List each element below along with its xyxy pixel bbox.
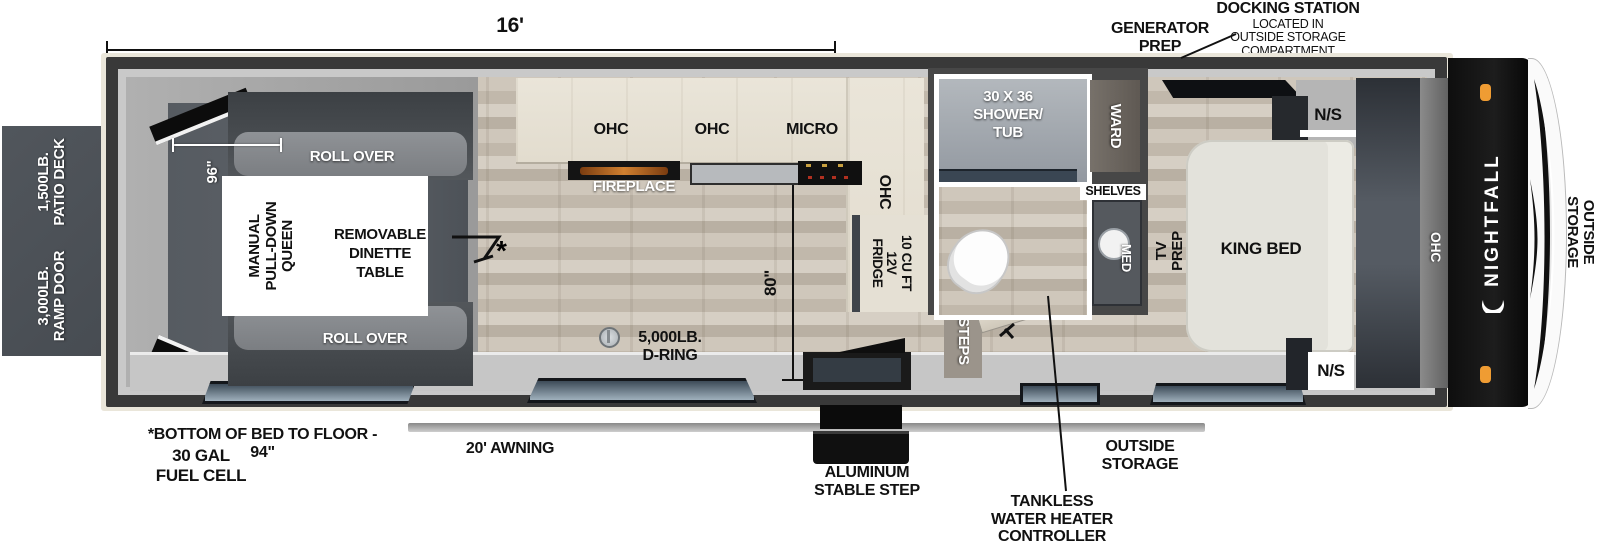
marker-light-bottom [1480,366,1491,383]
ns-top-label: N/S [1302,106,1354,125]
ohc-right-label: OHC [864,172,904,212]
crescent-moon-icon [1482,295,1504,313]
stable-step-lower [813,431,909,464]
ns-bottom-label: N/S [1308,362,1354,381]
sofa-top [228,92,473,180]
brand-logo-text: NIGHTFALL [1483,153,1504,287]
garage-width-dim-label: 96" [193,152,233,192]
shower-glass-door [939,169,1077,183]
d-ring-icon [599,327,620,348]
shelves-label: SHELVES [1080,185,1146,199]
tv-prep-label: TV PREP [1140,221,1200,281]
king-bed-label: KING BED [1196,240,1326,259]
fuel-cell-label: 30 GAL FUEL CELL [136,446,266,485]
window-bedroom-bottom [1150,383,1306,405]
awning-bar [408,423,1205,432]
stable-step-upper [820,405,902,429]
awning-label: 20' AWNING [430,440,590,458]
kitchen-sink [690,163,800,185]
cooktop-burners [808,176,852,179]
entry-door [803,352,911,390]
wardrobe-label: WARD [1095,106,1135,146]
shower-label: 30 X 36 SHOWER/ TUB [940,88,1076,142]
roll-over-top-label: ROLL OVER [292,149,412,166]
fireplace-flame [580,167,668,175]
kitchen-depth-dim-line [792,185,794,381]
kitchen-depth-dim-label: 80" [751,263,791,303]
overall-length-dim-line [107,49,836,51]
micro-label: MICRO [772,121,852,139]
roll-over-bottom-label: ROLL OVER [305,331,425,348]
garage-dim-tick-right [280,138,282,152]
garage-dim-tick-left [172,138,174,152]
marker-light-top [1480,84,1491,101]
entry-door-glass [813,358,901,382]
tankless-label: TANKLESS WATER HEATER CONTROLLER [972,493,1132,546]
outside-storage-bottom-label: OUTSIDE STORAGE [1080,438,1200,473]
window-entry-bottom [1020,383,1100,405]
fireplace-label: FIREPLACE [569,179,699,196]
kitchen-dim-tick-bottom [782,379,804,381]
pull-down-queen-label: MANUALPULL-DOWNQUEEN [222,192,322,300]
ohc-left-label: OHC [576,121,646,139]
dinette-label: REMOVABLE DINETTE TABLE [328,226,432,282]
fridge-label: 10 CU FT12VFRIDGE [851,221,931,305]
overall-length-dim-label: 16' [460,14,560,37]
stable-step-label: ALUMINUM STABLE STEP [787,464,947,499]
cooktop-knobs [806,164,854,167]
cooktop [798,161,862,185]
garage-width-dim-line [172,144,282,146]
floorplan-canvas: 16' GENERATOR PREP DOCKING STATION LOCAT… [0,0,1600,555]
patio-deck-label: 1,500LB.PATIO DECK [12,118,92,246]
ns-top-bar [1300,130,1358,137]
outside-storage-right-label: OUTSIDESTORAGE [1530,180,1600,284]
window-kitchen-bottom [527,378,757,403]
d-ring-label: 5,000LB. D-RING [620,329,720,364]
d-ring-pin [607,330,610,343]
ramp-door-label: 3,000LB.RAMP DOOR [12,232,92,360]
ohc-mid-label: OHC [677,121,747,139]
docking-station-label: DOCKING STATION LOCATED IN OUTSIDE STORA… [1198,0,1378,59]
